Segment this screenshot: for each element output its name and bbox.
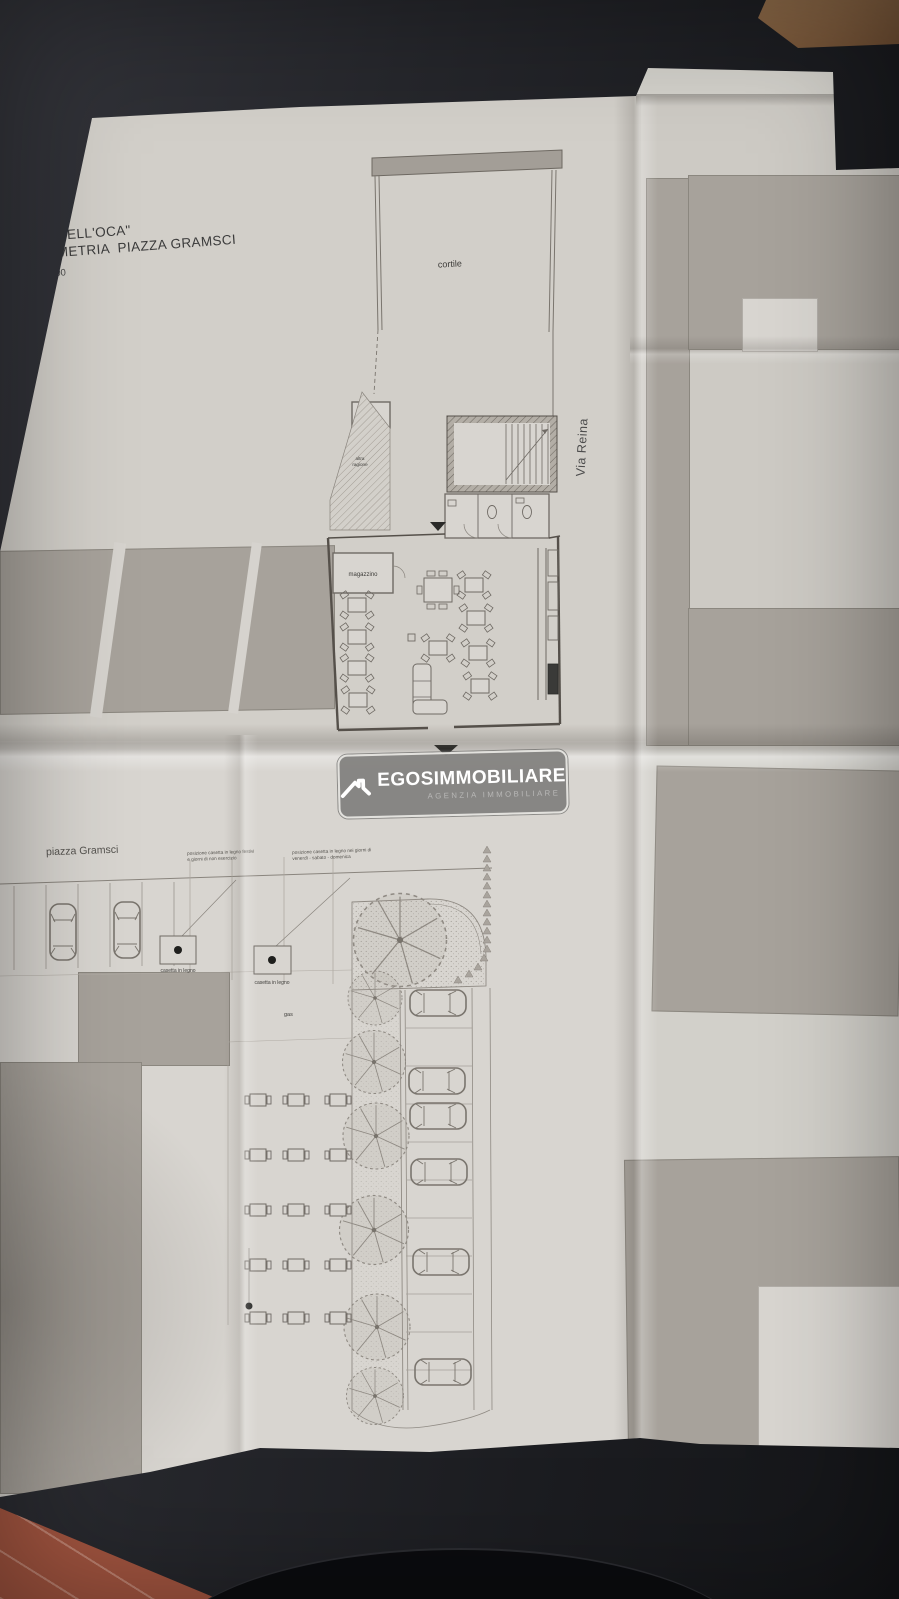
photo-of-floor-plan: cortile altra ragione (0, 0, 899, 1599)
bar-equipment-dark (548, 664, 558, 694)
parking-dividers (406, 1028, 472, 1370)
tree-symbol (343, 1031, 406, 1094)
tree-symbol (347, 1368, 404, 1425)
other-property-label: altra (356, 456, 365, 461)
table-symbol (457, 571, 491, 599)
table-symbol (340, 591, 374, 619)
courtyard-right-wall (549, 170, 556, 332)
bar-equipment (548, 616, 558, 640)
entrance-arrow (430, 522, 446, 531)
building-block-lower-right-upper (651, 765, 899, 1016)
tree-symbol (344, 1294, 410, 1360)
tree-symbol (343, 1103, 409, 1169)
bar-equipment (548, 582, 558, 610)
wood-table-corner (758, 0, 899, 48)
door-arc (393, 566, 405, 578)
wooden-cabin-b: casetta in legno (254, 946, 291, 986)
car-symbol (114, 902, 140, 958)
cabin-label: casetta in legno (160, 968, 195, 974)
courtyard-notch (742, 298, 818, 352)
car-symbol (415, 1359, 471, 1385)
bar-equipment (548, 550, 558, 576)
piazza-gramsci-label: piazza Gramsci (46, 844, 119, 859)
courtyard-notch (758, 1286, 899, 1456)
large-table-symbol (417, 571, 459, 609)
agency-tagline: AGENZIA IMMOBILIARE (427, 788, 560, 800)
car-symbol (411, 1159, 467, 1185)
terracotta-floor-corner (0, 1508, 218, 1599)
building-block-left-band (0, 545, 335, 715)
other-property-label: ragione (352, 462, 368, 467)
room-bottom-wall (338, 724, 560, 730)
table-symbol (459, 604, 493, 632)
car-symbol (413, 1249, 469, 1275)
utility-point (246, 1303, 253, 1310)
wooden-cabin-a: casetta in legno (160, 936, 196, 974)
courtyard-label: cortile (438, 258, 463, 269)
street-boundary-line (0, 868, 492, 884)
bar-floor-plan-drawing: cortile altra ragione (320, 148, 570, 763)
car-symbol (410, 990, 466, 1016)
courtyard-top-wall (372, 150, 562, 176)
table-symbol (461, 639, 495, 667)
agency-watermark-badge: EGOSIMMOBILIARE AGENZIA IMMOBILIARE (337, 749, 568, 819)
couch-symbol (413, 664, 447, 714)
house-roof-icon (340, 765, 372, 808)
table-symbol (340, 654, 374, 682)
agency-brand-name: EGOSIMMOBILIARE (377, 765, 566, 792)
building-block-right-strip (646, 178, 690, 746)
storage-label: magazzino (348, 572, 378, 578)
planter-symbol (408, 634, 415, 641)
bar-counter (538, 548, 546, 700)
table-symbol (340, 623, 374, 651)
outdoor-table-grid (245, 1094, 351, 1324)
leader-lines (182, 878, 350, 946)
courtyard-left-wall (375, 176, 382, 330)
area-edge-line (228, 1038, 352, 1042)
parking-column-lines (405, 988, 492, 1410)
gas-label: gas (284, 1012, 293, 1018)
tree-symbol (348, 971, 402, 1025)
parking-stall-lines (14, 882, 174, 970)
table-symbol (341, 686, 375, 714)
car-symbol (410, 1103, 466, 1129)
dark-table-edge (160, 1548, 760, 1599)
building-block-mid-right (688, 608, 899, 746)
table-symbol (463, 672, 497, 700)
stair-room-floor (454, 423, 550, 485)
car-symbol (50, 904, 76, 960)
bathroom-block (445, 494, 549, 538)
car-symbol (409, 1068, 465, 1094)
table-symbol (421, 634, 455, 662)
cabin-label: casetta in legno (254, 980, 289, 986)
piazza-site-plan-drawing: casetta in legno casetta in legno (0, 840, 520, 1440)
